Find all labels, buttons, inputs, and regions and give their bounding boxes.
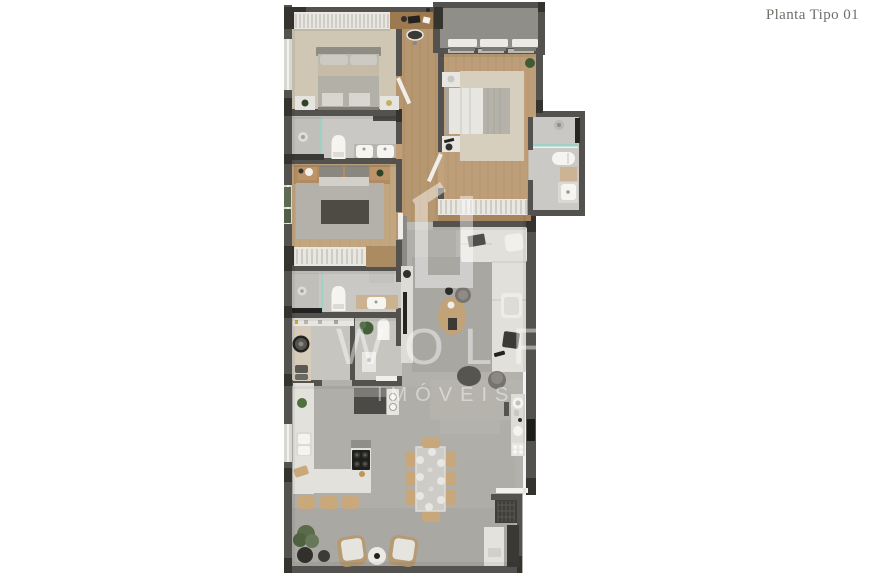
svg-text:IMÓVEIS: IMÓVEIS	[377, 383, 516, 406]
svg-text:WOLFF: WOLFF	[336, 318, 614, 375]
svg-text:Planta Tipo 01: Planta Tipo 01	[766, 7, 859, 23]
